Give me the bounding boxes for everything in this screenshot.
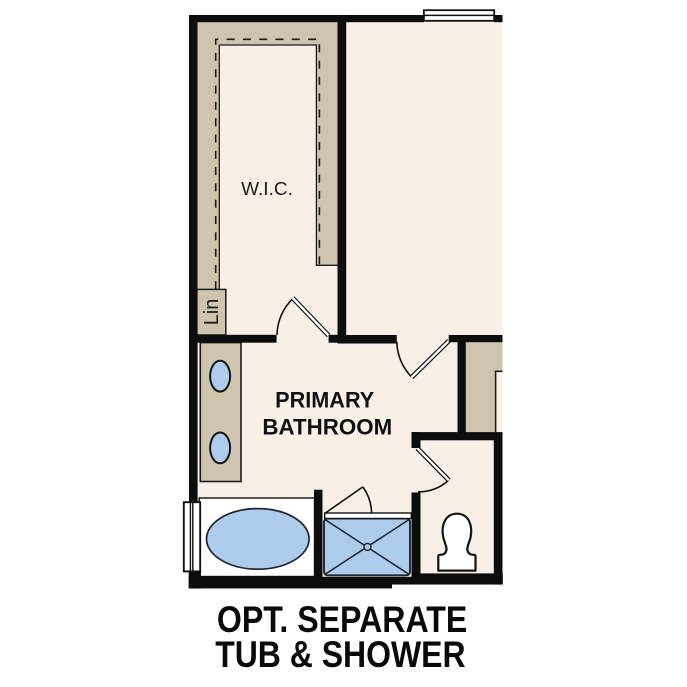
svg-text:Lin: Lin bbox=[201, 299, 223, 326]
svg-text:W.I.C.: W.I.C. bbox=[241, 178, 293, 199]
svg-text:BATHROOM: BATHROOM bbox=[262, 414, 392, 439]
svg-text:PRIMARY: PRIMARY bbox=[275, 387, 375, 412]
svg-text:TUB & SHOWER: TUB & SHOWER bbox=[215, 633, 465, 675]
